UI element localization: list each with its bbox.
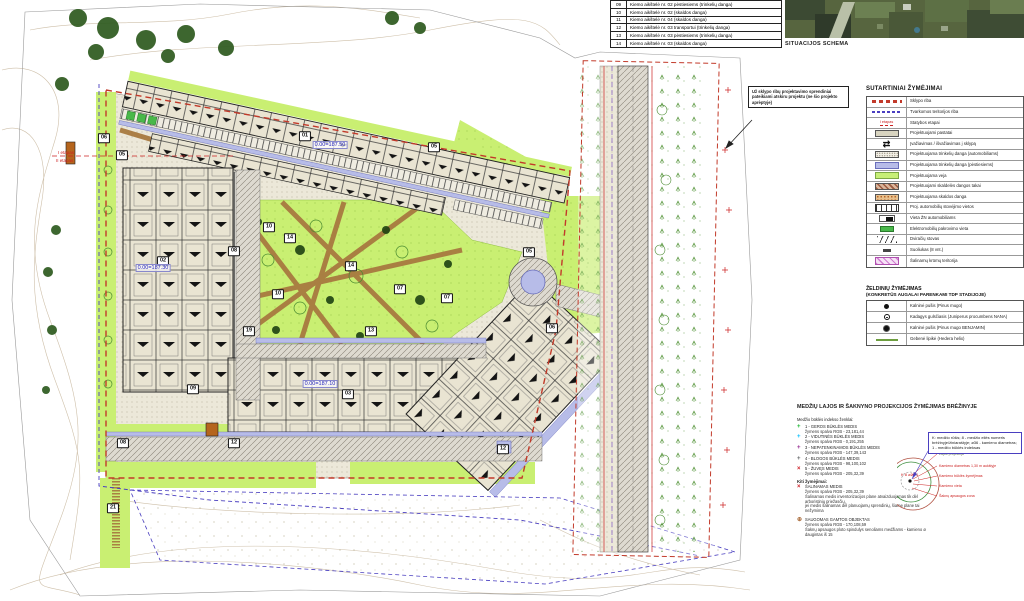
legend-row-label: Statybos etapai — [907, 121, 1023, 126]
planting-symbol-icon — [876, 339, 898, 341]
roundabout — [509, 258, 557, 306]
legend-row: Projektuojami pastatai — [867, 129, 1023, 140]
legend-row-label: Projektuojami pastatai — [907, 131, 1023, 136]
legend-symbol-cell — [867, 214, 907, 224]
planting-legend-table: Kalninė pušis (Pinus mugo) Kadagys gulsč… — [866, 300, 1024, 346]
planting-symbol-icon — [884, 314, 890, 320]
legend-panel: SUTARTINIAI ŽYMĖJIMAI Sklypo riba Tvarko… — [866, 86, 1024, 268]
planting-legend-subtitle: (KONKRETŪS AUGALAI PARENKAMI TDP STADIJO… — [866, 292, 1024, 297]
yard-label: Kiemo aikštelė nr. 02 (skaldos danga) — [627, 9, 782, 16]
legend-row-label: Projektuojama trinkelių danga (pėstiesie… — [907, 163, 1023, 168]
svg-text:Kamieno vieta: Kamieno vieta — [939, 484, 962, 488]
legend-symbol-icon: I etapas — [880, 120, 894, 126]
legend-symbol-icon: ⇄ — [883, 140, 891, 149]
legend-symbol-cell — [867, 235, 907, 245]
legend-row: Šalinamų krūmų teritorija — [867, 256, 1023, 267]
situation-schema-label: SITUACIJOS SCHEMA — [785, 41, 1024, 47]
legend-row: Projektuojama trinkelių danga (pėstiesie… — [867, 161, 1023, 172]
yard-label: Kiemo aikštelė nr. 04 (skaldos danga) — [627, 17, 782, 24]
planting-row-label: Kalninė pušis (Pinus mugo) — [907, 304, 1023, 309]
legend-symbol-cell — [867, 161, 907, 171]
planting-row: Kalninė pušis (Pinus mugo BENJAMIN) — [867, 323, 1023, 334]
planting-symbol-cell — [867, 312, 907, 322]
legend-row-label: Suoliukas (8 vnt.) — [907, 248, 1023, 253]
tree-diagram-callout: K: medžio rūšis; 8 - medžio eilės numeri… — [928, 432, 1022, 454]
removed-tree-glyph: × — [797, 485, 803, 514]
legend-symbol-icon — [879, 215, 895, 222]
legend-symbol-cell — [867, 182, 907, 192]
legend-row-label: Vieta ŽN automobiliams — [907, 216, 1023, 221]
yard-table-row: 11 Kiemo aikštelė nr. 04 (skaldos danga) — [611, 17, 782, 25]
legend-symbol-icon — [872, 111, 902, 113]
planting-row-label: Gebenė lipikė (Hedera helix) — [907, 337, 1023, 342]
yard-label: Kiemo aikštelė nr. 03 pėstiesiems (trink… — [627, 32, 782, 39]
legend-symbol-cell — [867, 171, 907, 181]
legend-row: Projektuojama veja — [867, 171, 1023, 182]
legend-row-label: Projektuojami skaldelės dangos takai — [907, 184, 1023, 189]
yard-table-row: 13 Kiemo aikštelė nr. 03 pėstiesiems (tr… — [611, 32, 782, 40]
legend-symbol-icon — [875, 183, 899, 190]
yard-number: 09 — [611, 1, 627, 8]
legend-symbol-icon — [883, 249, 891, 252]
legend-row-label: Proj. automobilių stovėjimo vietos — [907, 205, 1023, 210]
yard-number: 14 — [611, 40, 627, 47]
legend-symbol-icon — [875, 172, 899, 179]
legend-symbol-cell: I etapas — [867, 118, 907, 128]
legend-symbol-cell — [867, 129, 907, 139]
legend-row: Projektuojami skaldelės dangos takai — [867, 182, 1023, 193]
legend-row: Suoliukas (8 vnt.) — [867, 245, 1023, 256]
tree-index-glyph: + — [797, 457, 803, 467]
legend-symbol-icon — [875, 204, 899, 212]
legend-row-label: Tvarkomos teritorijos riba — [907, 110, 1023, 115]
planting-row-label: Kalninė pušis (Pinus mugo BENJAMIN) — [907, 326, 1023, 331]
legend-symbol-cell — [867, 150, 907, 160]
legend-row-label: Projektuojama veja — [907, 174, 1023, 179]
svg-text:Šaknų apsaugos zona: Šaknų apsaugos zona — [939, 493, 975, 498]
situation-schema: SITUACIJOS SCHEMA — [785, 0, 1024, 47]
survey-cross-marks — [720, 87, 732, 508]
legend-row-label: Šalinamų krūmų teritorija — [907, 259, 1023, 264]
legend-symbol-cell — [867, 108, 907, 118]
legend-symbol-icon — [877, 236, 897, 243]
yard-number: 13 — [611, 32, 627, 39]
planting-symbol-cell — [867, 301, 907, 311]
tree-index-glyph: + — [797, 446, 803, 456]
svg-text:Kamieno diametras 1,30 m aukšt: Kamieno diametras 1,30 m aukštyje — [939, 464, 996, 468]
legend-symbol-cell — [867, 256, 907, 267]
svg-text:Kamieno būklės žymėjimas: Kamieno būklės žymėjimas — [939, 474, 983, 478]
legend-row: Vieta ŽN automobiliams — [867, 214, 1023, 225]
yard-table-row: 12 Kiemo aikštelė nr. 03 transportui (tr… — [611, 24, 782, 32]
legend-row-label: Sklypo riba — [907, 99, 1023, 104]
note-arrow — [726, 120, 752, 148]
legend-symbol-icon — [875, 151, 899, 158]
planting-row-label: Kadagys gulsčiasis (Juniperus procumbens… — [907, 315, 1023, 320]
legend-symbol-cell — [867, 203, 907, 213]
legend-row-label: Įvažiavimas / išvažiavimas į sklypą — [907, 142, 1023, 147]
aerial-photo — [785, 0, 1024, 38]
legend-table: Sklypo riba Tvarkomos teritorijos riba I… — [866, 96, 1024, 268]
legend-row-label: Projektuojama skaldos danga — [907, 195, 1023, 200]
legend-row: Projektuojama trinkelių danga (automobil… — [867, 150, 1023, 161]
yard-table-row: 14 Kiemo aikštelė nr. 03 (skaldos danga) — [611, 40, 782, 48]
yard-table-row: 10 Kiemo aikštelė nr. 02 (skaldos danga) — [611, 9, 782, 17]
tree-index-glyph: × — [797, 467, 803, 477]
legend-symbol-icon — [875, 257, 899, 265]
yard-areas-table: 09 Kiemo aikštelė nr. 02 pėstiesiems (tr… — [610, 0, 782, 48]
yard-label: Kiemo aikštelė nr. 03 transportui (trink… — [627, 24, 782, 31]
yard-number: 10 — [611, 9, 627, 16]
legend-row: Dviračių stovas — [867, 235, 1023, 246]
tree-marking-title: MEDŽIŲ LAJOS IR ŠAKNYNO PROJEKCIJOS ŽYMĖ… — [797, 404, 1024, 410]
planting-symbol-cell — [867, 323, 907, 333]
legend-symbol-cell — [867, 192, 907, 202]
tree-index-glyph: + — [797, 435, 803, 445]
planting-row: Gebenė lipikė (Hedera helix) — [867, 334, 1023, 345]
yard-table-row: 09 Kiemo aikštelė nr. 02 pėstiesiems (tr… — [611, 1, 782, 9]
legend-symbol-icon — [880, 226, 894, 232]
legend-row: ⇄ Įvažiavimas / išvažiavimas į sklypą — [867, 139, 1023, 150]
tree-index-intro: Medžio būklės indekso ženklai: — [797, 418, 927, 423]
legend-title: SUTARTINIAI ŽYMĖJIMAI — [866, 86, 1024, 92]
tree-index-glyph: + — [797, 425, 803, 435]
planting-legend-panel: ŽELDINIŲ ŽYMĖJIMAS (KONKRETŪS AUGALAI PA… — [866, 286, 1024, 346]
planting-symbol-icon — [884, 304, 889, 309]
yard-label: Kiemo aikštelė nr. 03 (skaldos danga) — [627, 40, 782, 47]
legend-symbol-cell — [867, 224, 907, 234]
planting-symbol-cell — [867, 334, 907, 345]
legend-symbol-cell — [867, 97, 907, 107]
legend-row-label: Elektromobilių pakrovimo vieta — [907, 227, 1023, 232]
legend-row-label: Dviračių stovas — [907, 237, 1023, 242]
legend-symbol-icon — [875, 194, 899, 201]
offsite-note-box: Už sklypo ribų projektavimo sprendiniai … — [748, 86, 849, 108]
legend-symbol-icon — [875, 130, 899, 137]
legend-symbol-cell: ⇄ — [867, 139, 907, 149]
legend-symbol-icon — [872, 100, 902, 103]
legend-row: Elektromobilių pakrovimo vieta — [867, 224, 1023, 235]
legend-row: Projektuojama skaldos danga — [867, 192, 1023, 203]
legend-row-label: Projektuojama trinkelių danga (automobil… — [907, 152, 1023, 157]
legend-symbol-cell — [867, 245, 907, 255]
yard-number: 11 — [611, 17, 627, 24]
planting-row: Kalninė pušis (Pinus mugo) — [867, 301, 1023, 312]
yard-label: Kiemo aikštelė nr. 02 pėstiesiems (trink… — [627, 1, 782, 8]
planting-row: Kadagys gulsčiasis (Juniperus procumbens… — [867, 312, 1023, 323]
sheet: { "colors": { "boundary_red": "#c23a2a",… — [0, 0, 1024, 601]
protected-object-glyph: ⊕ — [797, 518, 803, 537]
legend-row: Tvarkomos teritorijos riba — [867, 108, 1023, 119]
legend-row: Proj. automobilių stovėjimo vietos — [867, 203, 1023, 214]
planting-symbol-icon — [883, 325, 890, 332]
legend-row: Sklypo riba — [867, 97, 1023, 108]
legend-symbol-icon — [875, 162, 899, 169]
yard-number: 12 — [611, 24, 627, 31]
tree-marking-block: MEDŽIŲ LAJOS IR ŠAKNYNO PROJEKCIJOS ŽYMĖ… — [797, 404, 1024, 538]
street-zone — [573, 61, 732, 558]
legend-row: I etapas Statybos etapai — [867, 118, 1023, 129]
